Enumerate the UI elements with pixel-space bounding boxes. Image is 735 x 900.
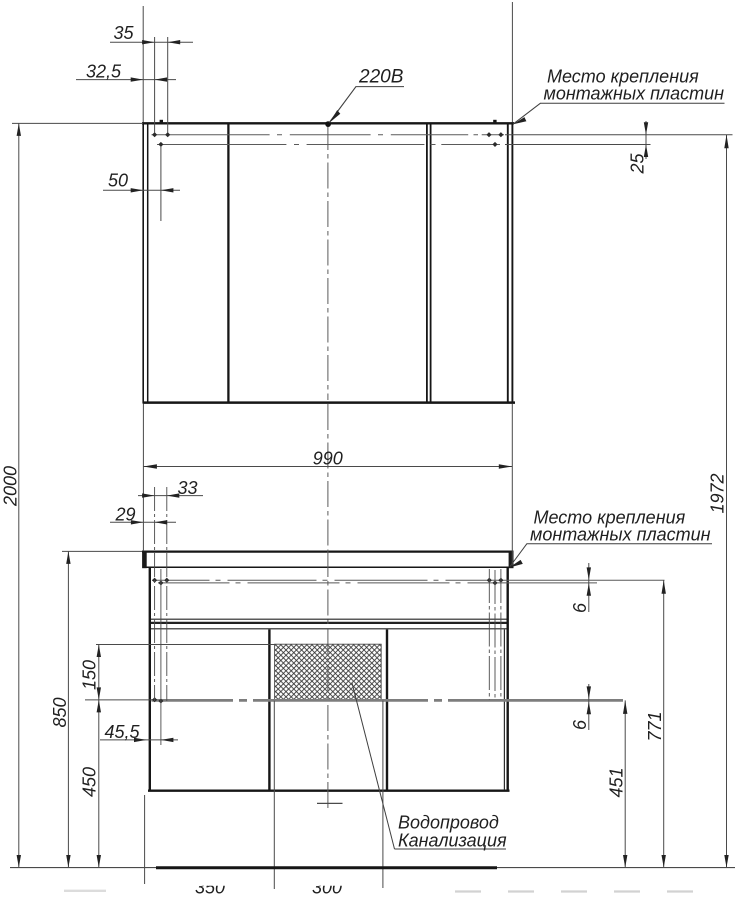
- svg-text:6: 6: [570, 719, 590, 730]
- svg-text:50: 50: [108, 171, 128, 191]
- svg-text:220В: 220В: [358, 67, 404, 88]
- svg-text:45,5: 45,5: [105, 722, 141, 742]
- svg-text:1972: 1972: [708, 473, 728, 513]
- svg-text:6: 6: [570, 602, 590, 613]
- svg-text:монтажных пластин: монтажных пластин: [530, 525, 711, 545]
- svg-text:монтажных пластин: монтажных пластин: [544, 84, 725, 104]
- svg-text:451: 451: [607, 767, 627, 797]
- svg-text:35: 35: [114, 23, 135, 43]
- svg-text:25: 25: [628, 152, 648, 174]
- svg-text:32,5: 32,5: [86, 62, 122, 82]
- svg-text:2000: 2000: [1, 466, 21, 507]
- svg-text:990: 990: [313, 448, 343, 468]
- svg-text:Канализация: Канализация: [398, 830, 507, 850]
- svg-text:450: 450: [80, 767, 100, 797]
- svg-text:771: 771: [645, 711, 665, 741]
- svg-text:29: 29: [115, 504, 136, 524]
- svg-text:850: 850: [50, 697, 70, 727]
- svg-text:150: 150: [80, 660, 100, 690]
- svg-text:33: 33: [178, 478, 198, 498]
